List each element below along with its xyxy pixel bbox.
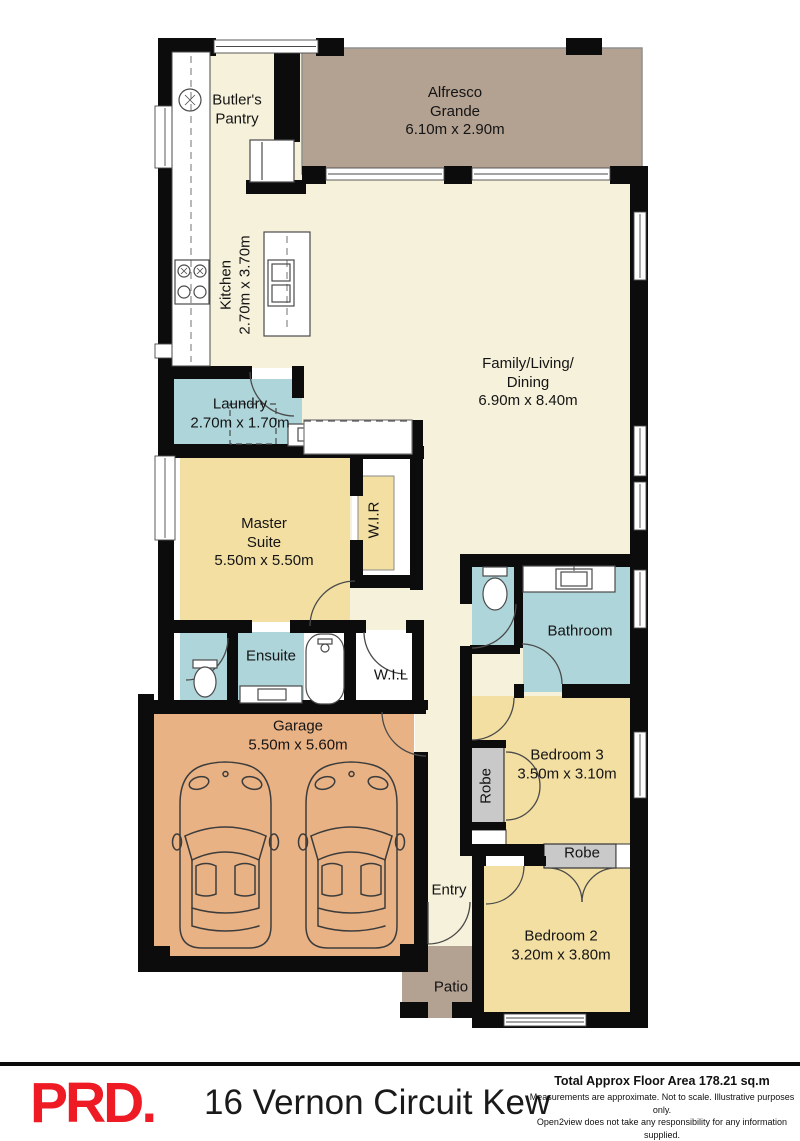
label-bedroom3: Bedroom 33.50m x 3.10m [517, 746, 616, 783]
label-laundry: Laundry2.70m x 1.70m [190, 395, 289, 432]
wc-toilet-tank [483, 567, 507, 576]
label-robe-bed2: Robe [564, 845, 600, 864]
footer-divider [0, 1062, 800, 1066]
prd-logo: PRD. [30, 1070, 154, 1136]
disclaimer-text: Measurements are approximate. Not to sca… [528, 1091, 796, 1141]
footer-fine-print: Total Approx Floor Area 178.21 sq.m Meas… [528, 1074, 796, 1141]
floor-area-text: Total Approx Floor Area 178.21 sq.m [528, 1074, 796, 1088]
ensuite-toilet [194, 667, 216, 697]
label-entry: Entry [431, 882, 466, 901]
floorplan-page: { "plan": { "rooms": { "butlers_pantry":… [0, 0, 800, 1132]
label-bathroom: Bathroom [547, 623, 612, 642]
label-wil: W.I.L [374, 667, 408, 686]
label-kitchen: Kitchen2.70m x 3.70m [217, 235, 254, 334]
floor-plan-drawing [0, 0, 800, 1132]
label-patio: Patio [434, 979, 468, 998]
wc-toilet [483, 578, 507, 610]
label-alfresco: AlfrescoGrande6.10m x 2.90m [405, 84, 504, 140]
label-robe-bed3: Robe [478, 768, 497, 804]
label-bedroom2: Bedroom 23.20m x 3.80m [511, 927, 610, 964]
label-butlers-pantry: Butler'sPantry [212, 91, 262, 128]
label-garage: Garage5.50m x 5.60m [248, 717, 347, 754]
pantry-appliance [250, 140, 294, 182]
label-ensuite: Ensuite [246, 648, 296, 667]
label-wir: W.I.R [366, 502, 385, 539]
bathroom-vanity [523, 566, 615, 592]
property-address: 16 Vernon Circuit Kew [204, 1083, 550, 1123]
label-family-living-dining: Family/Living/Dining6.90m x 8.40m [478, 355, 577, 411]
label-master-suite: MasterSuite5.50m x 5.50m [214, 515, 313, 571]
